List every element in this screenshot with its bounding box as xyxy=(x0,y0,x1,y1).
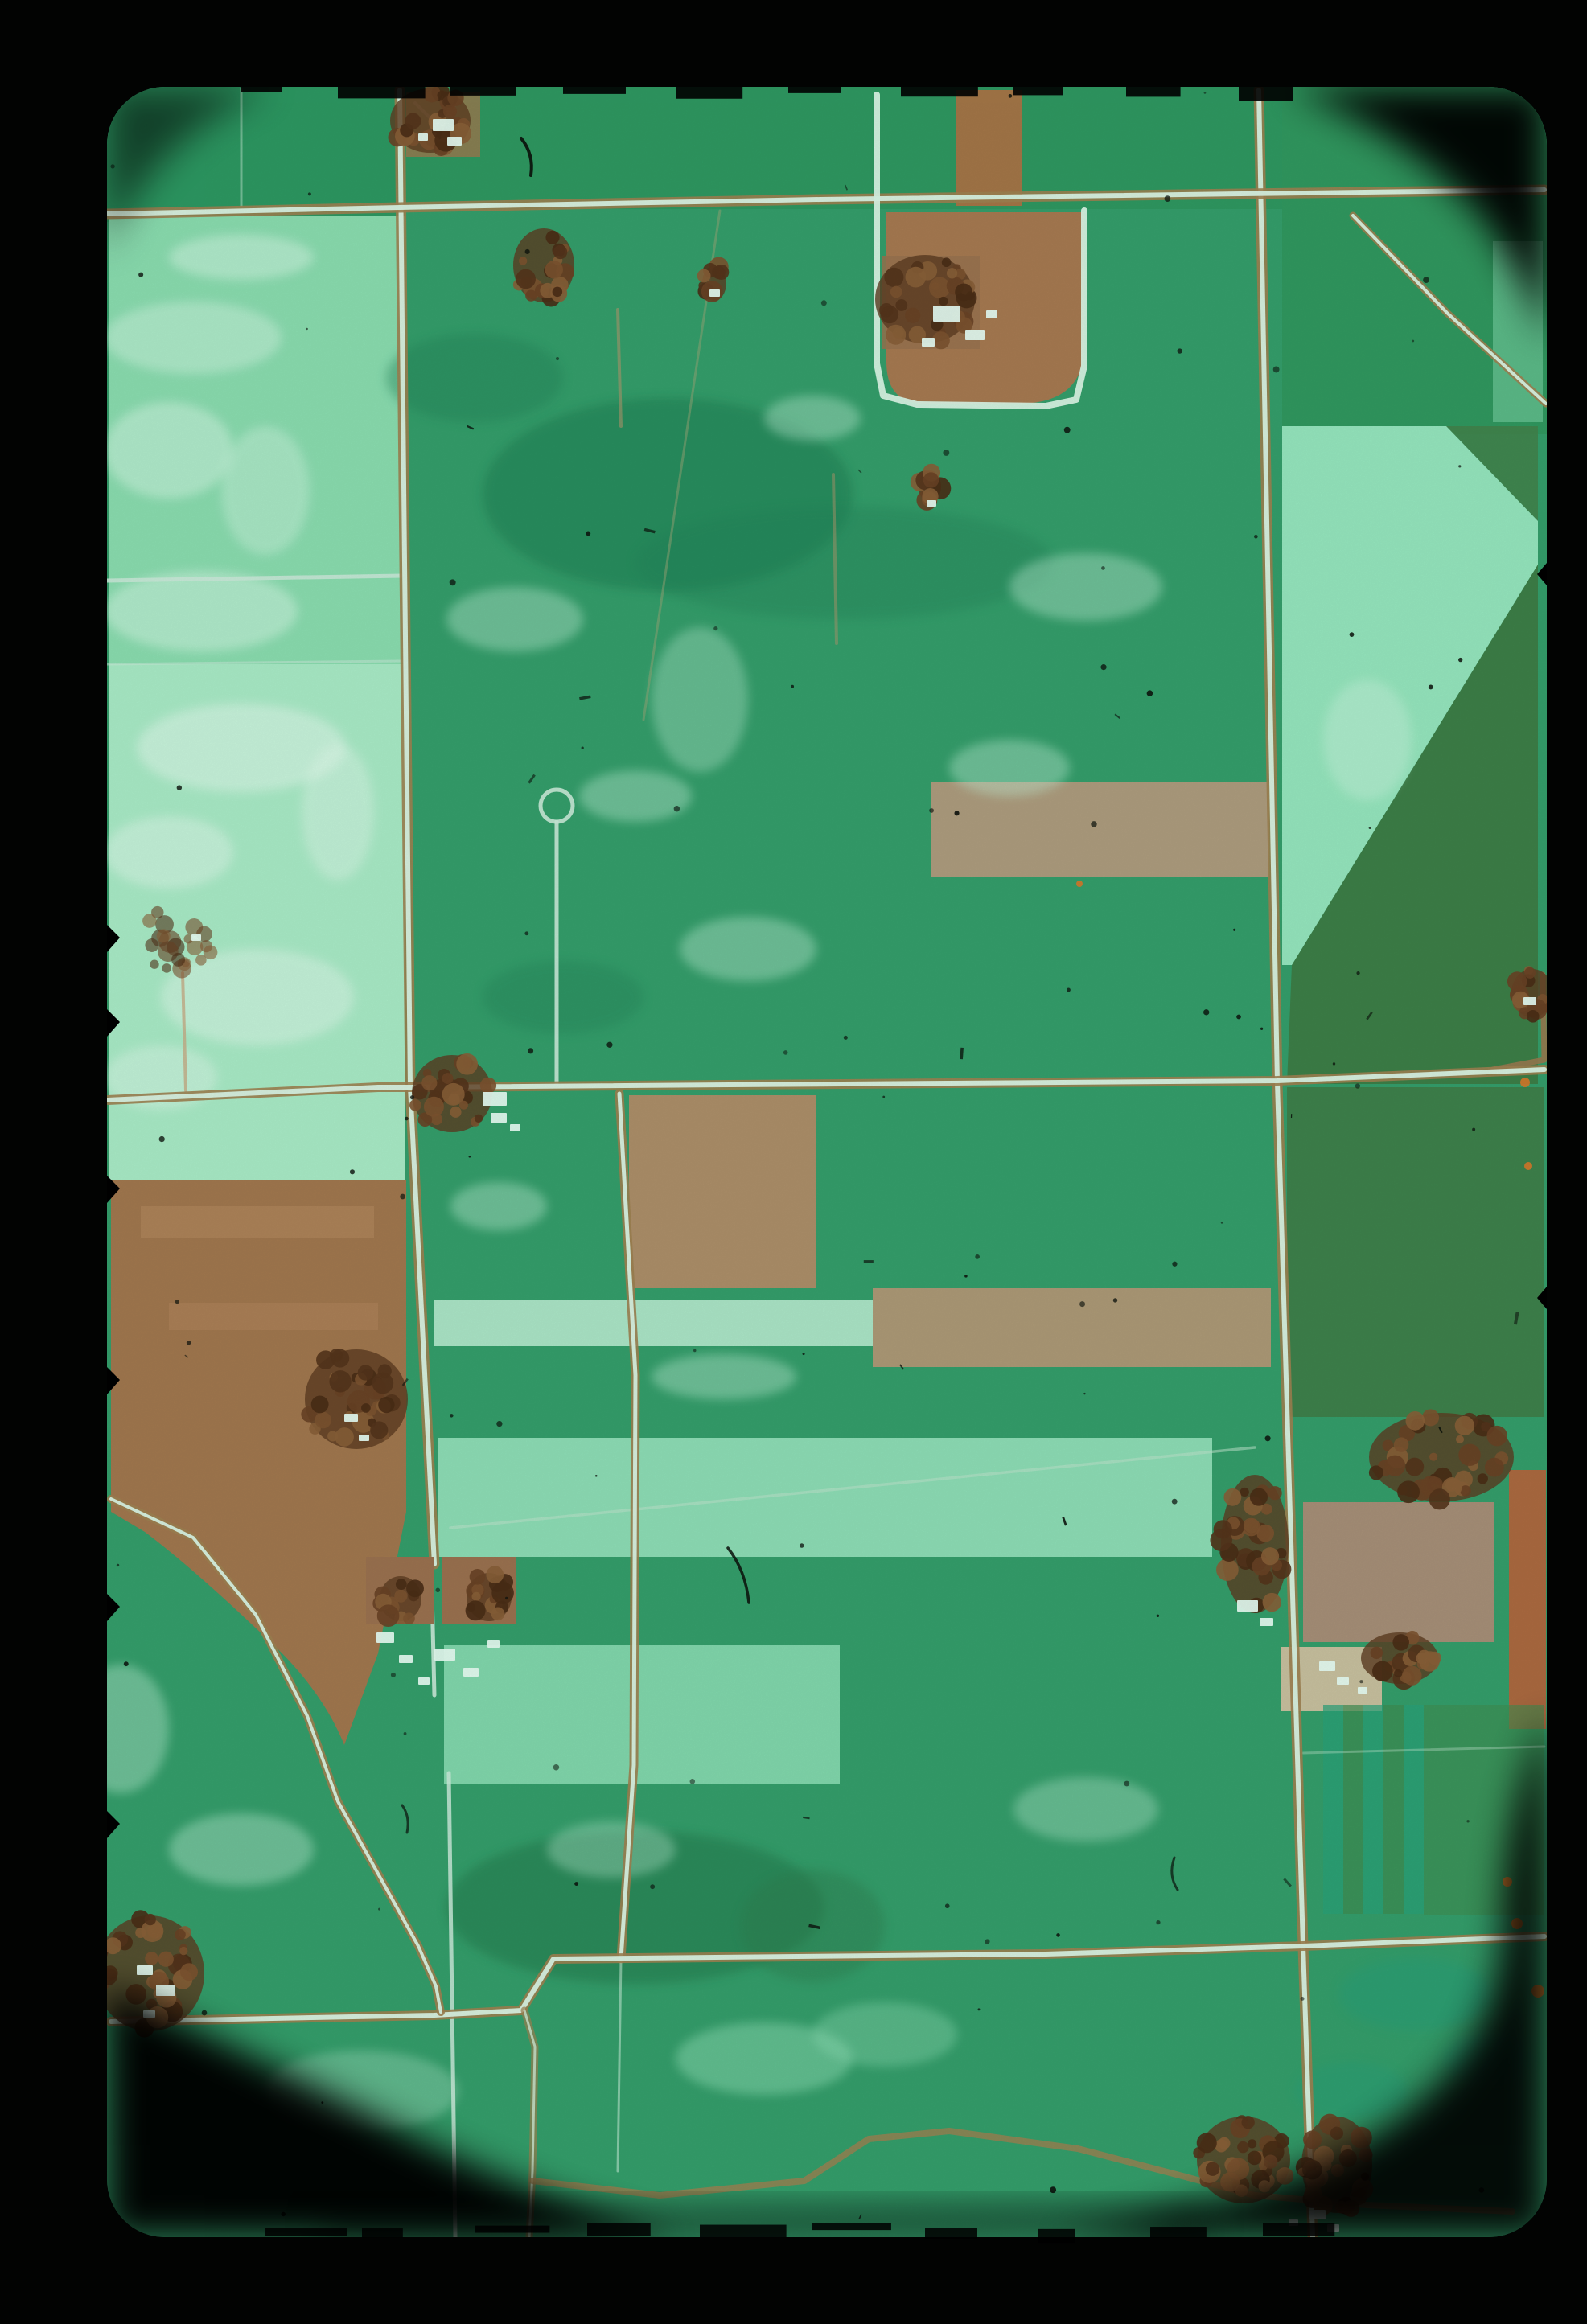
edge-nick-top xyxy=(563,87,626,94)
edge-nick-top xyxy=(450,87,516,96)
edge-nick-top xyxy=(676,87,742,99)
edge-nick-bottom xyxy=(1150,2227,1207,2238)
edge-nick-bottom xyxy=(265,2228,347,2236)
edge-nick-bottom xyxy=(812,2223,891,2230)
edge-nick-bottom xyxy=(587,2223,651,2236)
edge-nick-top xyxy=(901,87,978,96)
edge-nick-top xyxy=(338,87,426,98)
edge-nick-top xyxy=(1126,87,1181,96)
edge-nick-top xyxy=(788,87,841,93)
edge-nick-bottom xyxy=(925,2228,977,2239)
edge-nick-bottom xyxy=(1038,2229,1075,2243)
edge-nick-top xyxy=(1013,87,1063,95)
edge-nick-top xyxy=(1239,87,1293,101)
edge-nick-bottom xyxy=(1263,2223,1334,2236)
edge-nick-bottom xyxy=(475,2226,549,2233)
film-grain xyxy=(107,87,1547,2237)
edge-nick-bottom xyxy=(700,2225,787,2237)
slide-mount xyxy=(0,0,1587,2324)
edge-nick-top xyxy=(241,87,282,92)
aerial-photo xyxy=(0,0,1587,2324)
edge-nick-bottom xyxy=(362,2228,403,2237)
